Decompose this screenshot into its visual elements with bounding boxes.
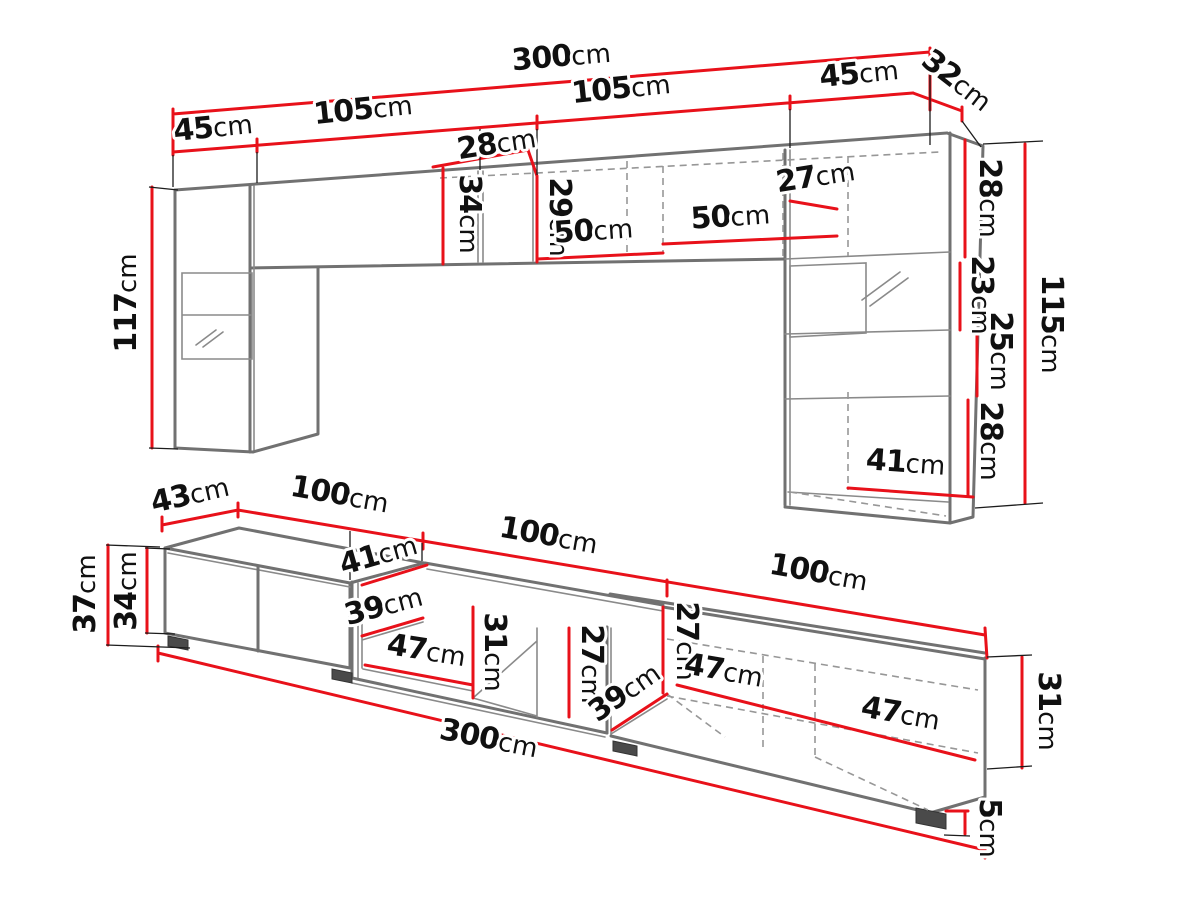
dimension-label-50cm: 50cm [553, 210, 635, 250]
dimension-label-32cm: 32cm [915, 42, 999, 118]
upper-view-furniture-lines [175, 133, 983, 523]
dimension-label-105cm: 105cm [570, 66, 672, 111]
dimension-label-41cm: 41cm [865, 442, 947, 482]
dimension-label-300cm: 300cm [510, 35, 612, 79]
dimension-label-5cm: 5cm [972, 798, 1007, 858]
dimension-label-100cm: 100cm [288, 469, 392, 521]
dimension-label-115cm: 115cm [1034, 274, 1069, 373]
dimension-label-37cm: 37cm [68, 554, 103, 633]
dimension-label-100cm: 100cm [497, 510, 601, 562]
dimension-label-100cm: 100cm [767, 547, 871, 599]
dimension-label-34cm: 34cm [109, 551, 144, 630]
upper-view-extension-lines [149, 56, 1043, 508]
dimension-label-45cm: 45cm [172, 106, 255, 149]
dimension-label-34cm: 34cm [452, 174, 487, 253]
furniture-dimension-diagram: 300cm45cm105cm105cm45cm32cm28cm34cm29cm5… [0, 0, 1200, 899]
dimension-label-117cm: 117cm [109, 253, 144, 352]
dimension-label-31cm: 31cm [477, 612, 512, 691]
lower-view-dimension-lines [108, 503, 1022, 858]
upper-view-labels: 300cm45cm105cm105cm45cm32cm28cm34cm29cm5… [109, 35, 1069, 483]
dimension-label-28cm: 28cm [973, 401, 1008, 480]
dimension-label-28cm: 28cm [972, 158, 1007, 237]
dimension-label-31cm: 31cm [1031, 671, 1066, 750]
dimension-label-50cm: 50cm [690, 196, 772, 236]
dimension-label-105cm: 105cm [312, 87, 414, 132]
dimension-label-47cm: 47cm [385, 627, 469, 674]
diagram-page: 300cm45cm105cm105cm45cm32cm28cm34cm29cm5… [0, 0, 1200, 899]
lower-view-labels: 43cm100cm100cm100cm41cm39cm47cm31cm27cm3… [68, 469, 1066, 858]
dimension-label-47cm: 47cm [859, 690, 943, 738]
dimension-label-25cm: 25cm [983, 311, 1018, 390]
